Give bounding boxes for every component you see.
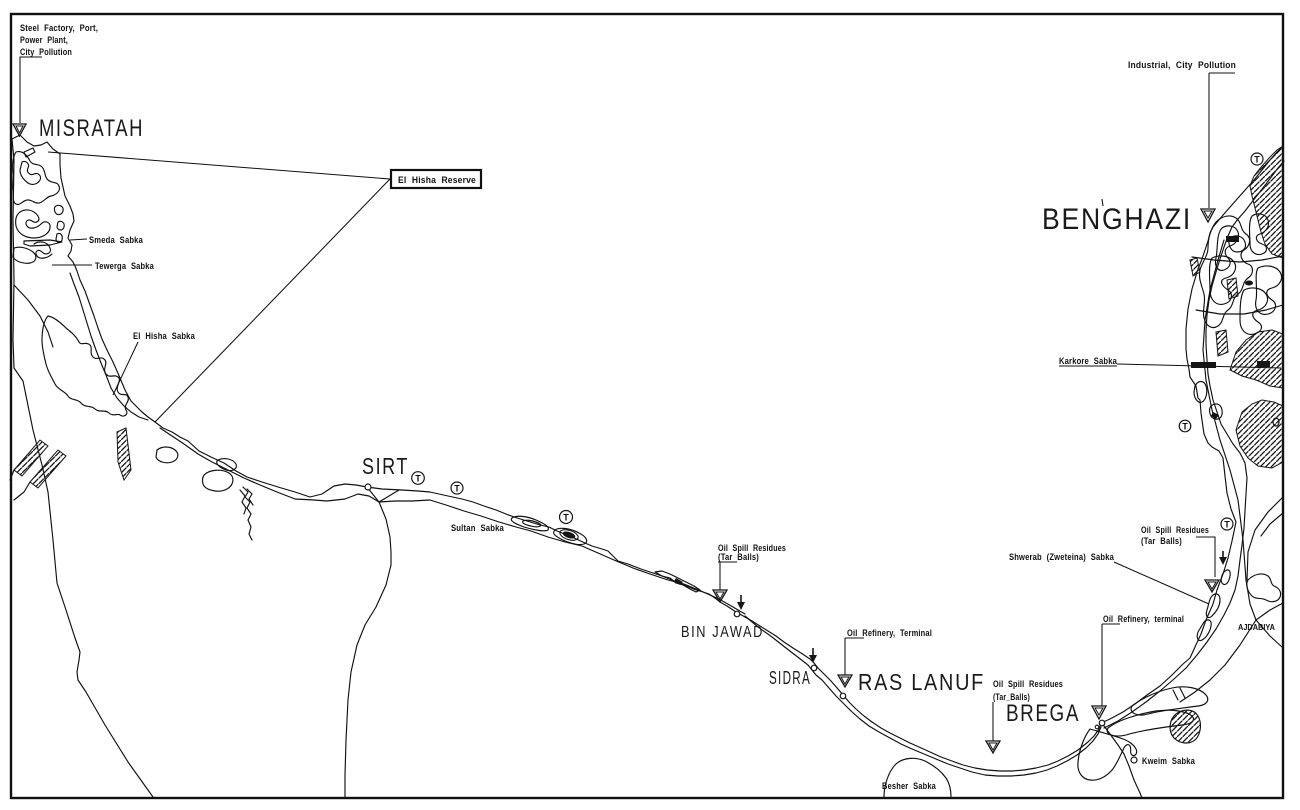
- svg-text:T: T: [1254, 155, 1260, 165]
- svg-text:Shwerab (Zweteina) Sabka: Shwerab (Zweteina) Sabka: [1009, 552, 1115, 562]
- svg-text:T: T: [1182, 422, 1188, 432]
- svg-text:MISRATAH: MISRATAH: [39, 115, 144, 142]
- svg-text:T: T: [563, 513, 569, 523]
- svg-text:T: T: [454, 484, 460, 494]
- svg-text:AJDABIYA: AJDABIYA: [1238, 623, 1275, 632]
- svg-text:RAS LANUF: RAS LANUF: [858, 669, 985, 695]
- svg-text:(Tar Balls): (Tar Balls): [1141, 536, 1182, 546]
- svg-text:BENGHAZI: BENGHAZI: [1042, 203, 1192, 236]
- svg-text:Steel Factory, Port,: Steel Factory, Port,: [20, 23, 98, 33]
- svg-text:T: T: [1224, 520, 1230, 530]
- svg-text:Oil Refinery, terminal: Oil Refinery, terminal: [1103, 614, 1184, 624]
- svg-text:BREGA: BREGA: [1006, 700, 1080, 727]
- svg-text:Power Plant,: Power Plant,: [20, 35, 68, 45]
- svg-text:Oil Spill Residues: Oil Spill Residues: [1141, 525, 1209, 535]
- svg-text:T: T: [415, 474, 421, 484]
- svg-text:BIN JAWAD: BIN JAWAD: [681, 624, 764, 641]
- svg-text:SIDRA: SIDRA: [769, 668, 811, 688]
- svg-text:Industrial, City Pollution: Industrial, City Pollution: [1128, 60, 1236, 70]
- svg-text:Tewerga Sabka: Tewerga Sabka: [95, 261, 155, 271]
- svg-text:Besher Sabka: Besher Sabka: [882, 781, 937, 791]
- svg-text:SIRT: SIRT: [362, 453, 409, 479]
- svg-text:City Pollution: City Pollution: [20, 47, 72, 57]
- svg-text:El Hisha Sabka: El Hisha Sabka: [133, 331, 196, 341]
- svg-text:Oil Spill Residues: Oil Spill Residues: [993, 679, 1063, 689]
- svg-text:Smeda Sabka: Smeda Sabka: [89, 235, 144, 245]
- svg-text:El Hisha Reserve: El Hisha Reserve: [398, 175, 476, 185]
- svg-text:Oil Refinery, Terminal: Oil Refinery, Terminal: [847, 628, 932, 638]
- svg-text:Kweim Sabka: Kweim Sabka: [1142, 756, 1196, 766]
- svg-text:Sultan Sabka: Sultan Sabka: [451, 523, 505, 533]
- svg-text:(Tar Balls): (Tar Balls): [718, 552, 759, 562]
- svg-text:Karkore Sabka: Karkore Sabka: [1059, 356, 1118, 366]
